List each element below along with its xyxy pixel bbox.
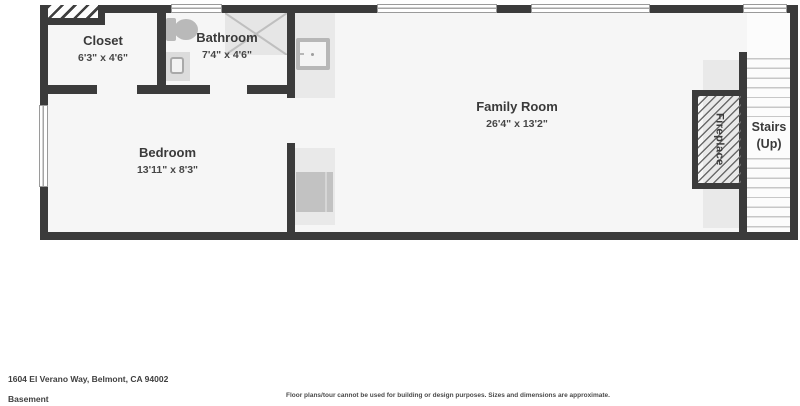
window-family-right <box>531 4 650 13</box>
room-label-family-room: Family Room <box>295 100 739 114</box>
room-dims-closet: 6'3" x 4'6" <box>48 52 158 64</box>
window-bedroom <box>39 105 48 187</box>
address-text: 1604 El Verano Way, Belmont, CA 94002 <box>8 374 168 384</box>
disclaimer-text: Floor plans/tour cannot be used for buil… <box>286 392 610 399</box>
bedroom-right-wall-lower <box>287 143 295 240</box>
room-dims-bathroom: 7'4" x 4'6" <box>166 49 288 61</box>
sink-icon <box>296 38 330 70</box>
level-text: Basement <box>8 394 49 404</box>
room-label-bathroom: Bathroom <box>166 31 288 45</box>
room-dims-family-room: 26'4" x 13'2" <box>295 118 739 130</box>
stairs-treads-upper <box>747 58 790 117</box>
room-label-closet: Closet <box>48 34 158 48</box>
appliance-icon <box>296 172 333 212</box>
stairs-treads-lower <box>747 158 790 229</box>
window-above-stairs <box>743 4 787 13</box>
bedroom-top-wall-seg1 <box>48 85 97 94</box>
window-bathroom <box>171 4 222 13</box>
room-label-bedroom: Bedroom <box>48 146 287 160</box>
stairs-label-line2: (Up) <box>741 137 797 151</box>
outer-wall-bottom <box>40 232 798 240</box>
floorplan-page: Fireplace Closet 6'3" x 4'6" Bathroom 7'… <box>0 0 800 406</box>
bedroom-top-wall-seg2 <box>137 85 210 94</box>
window-family-left <box>377 4 497 13</box>
stairs-label-line1: Stairs <box>741 120 797 134</box>
room-dims-bedroom: 13'11" x 8'3" <box>48 164 287 176</box>
bedroom-right-wall-upper <box>287 5 295 98</box>
closet-bathroom-divider-wall <box>157 5 166 93</box>
hatched-area <box>48 5 105 25</box>
